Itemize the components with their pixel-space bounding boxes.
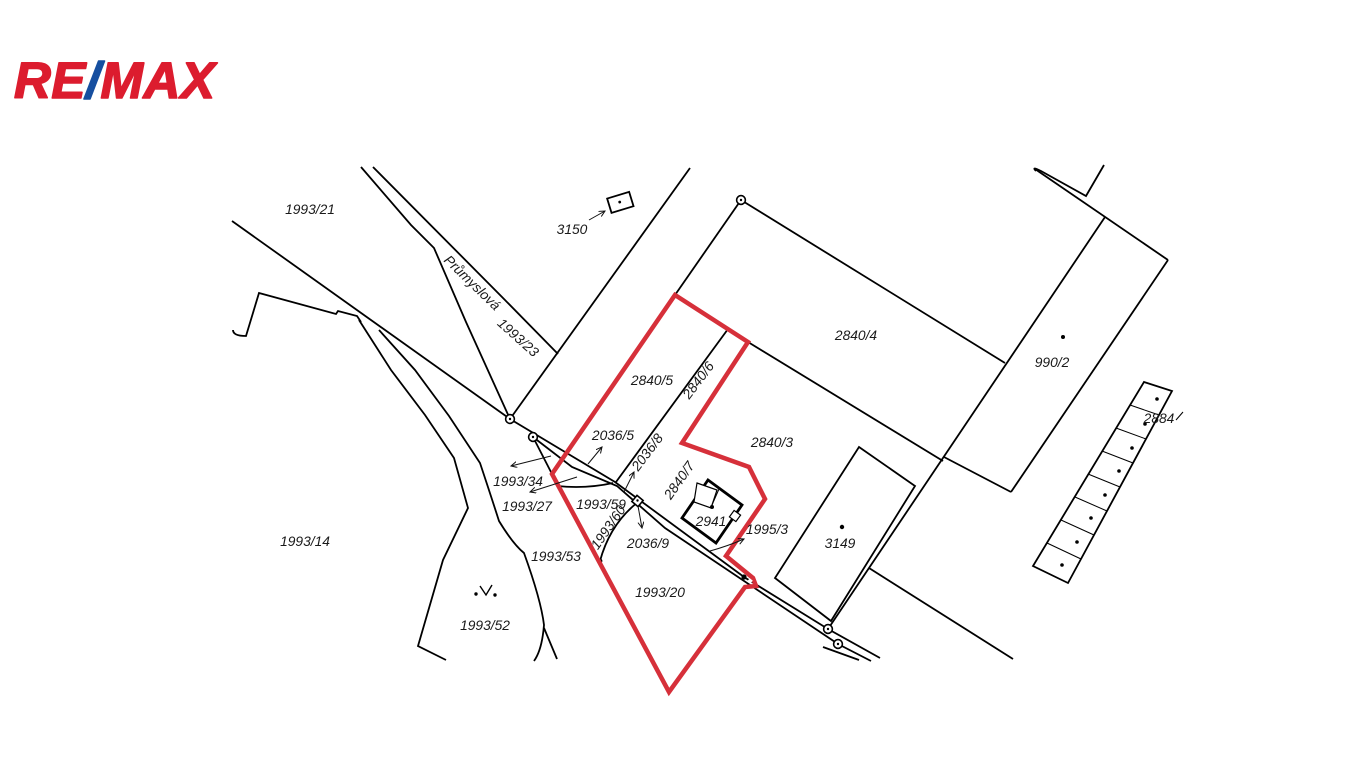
svg-text:1993/21: 1993/21: [285, 202, 335, 217]
svg-text:3149: 3149: [825, 536, 856, 551]
svg-text:RE/MAX: RE/MAX: [14, 52, 218, 109]
svg-text:1993/53: 1993/53: [531, 549, 581, 564]
svg-text:1993/20: 1993/20: [635, 585, 685, 600]
svg-text:1993/27: 1993/27: [502, 499, 553, 514]
svg-text:1993/52: 1993/52: [460, 618, 510, 633]
svg-text:2840/4: 2840/4: [834, 328, 878, 343]
svg-text:2840/3: 2840/3: [750, 435, 794, 450]
svg-text:2941: 2941: [695, 514, 727, 529]
svg-text:2884: 2884: [1143, 411, 1175, 426]
svg-text:1995/3: 1995/3: [746, 522, 789, 537]
svg-text:Průmyslová: Průmyslová: [441, 252, 503, 313]
svg-text:990/2: 990/2: [1035, 355, 1070, 370]
svg-text:1993/14: 1993/14: [280, 534, 330, 549]
svg-text:3150: 3150: [557, 222, 588, 237]
svg-text:2036/9: 2036/9: [626, 536, 670, 551]
svg-text:2840/7: 2840/7: [660, 458, 698, 503]
svg-text:1993/34: 1993/34: [493, 474, 543, 489]
svg-text:2840/5: 2840/5: [630, 373, 674, 388]
svg-text:1993/23: 1993/23: [494, 315, 541, 360]
svg-text:2036/5: 2036/5: [591, 428, 635, 443]
